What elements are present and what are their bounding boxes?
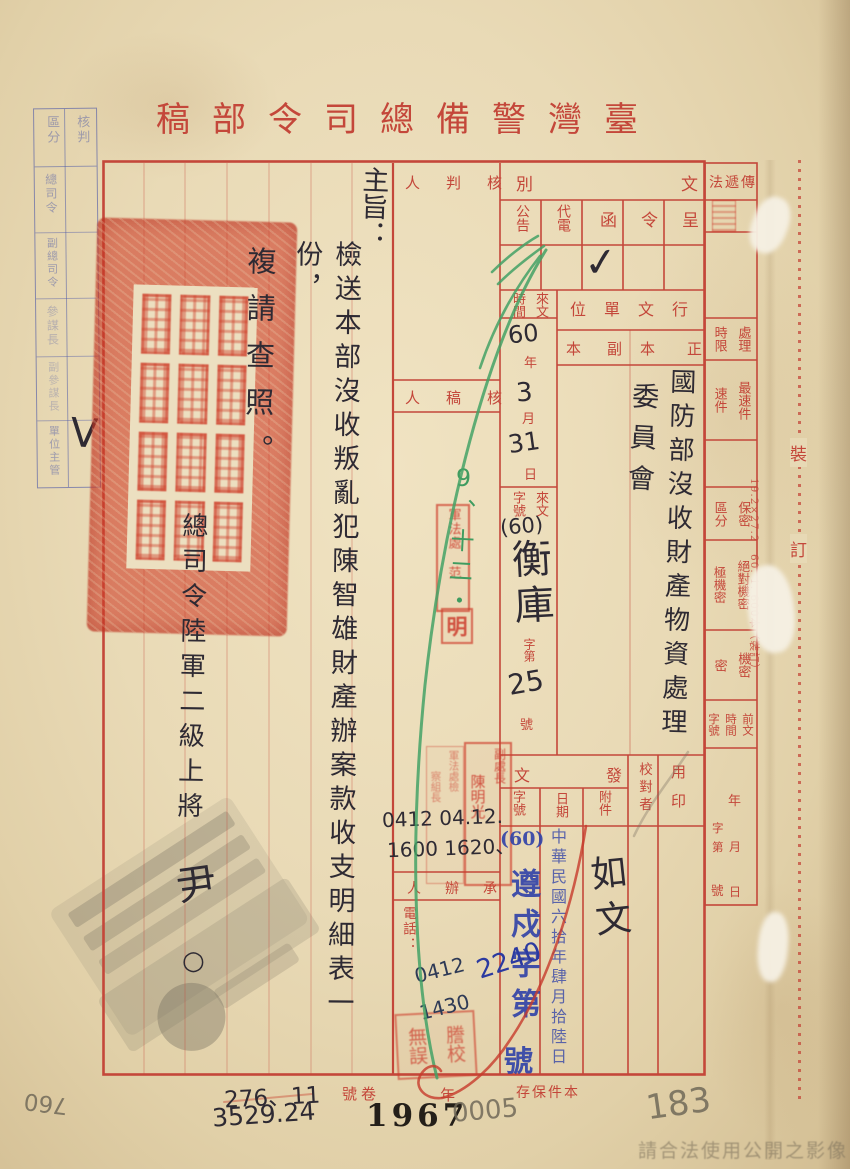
incoming-no-prefix: (60): [499, 512, 544, 540]
doc-class-option-daidian: 代電: [553, 204, 573, 232]
year-unit: 年: [524, 352, 537, 371]
recipient-handwritten: 委員會: [616, 381, 663, 533]
handler-times-handwritten: 0412 04.12.: [382, 804, 504, 832]
deadline-cell: 處理 時限: [705, 318, 757, 360]
prev-hao: 號: [711, 880, 724, 899]
usage-watermark: 請合法使用公開之影像: [638, 1136, 848, 1163]
doc-class-checkmark: ✓: [582, 238, 620, 287]
month-unit: 月: [522, 408, 535, 427]
seal-script-glyph: [137, 431, 168, 491]
seal-script-glyph: [139, 362, 170, 422]
incoming-year-value: 60: [507, 318, 540, 349]
document-page: 稿部令司總備警灣臺 核判 區分 總司令 副總司令 參謀長 副參謀長 單位主管 V: [0, 0, 850, 1169]
signer-mark-handwritten: ○: [182, 946, 205, 976]
incoming-month-value: 3: [515, 377, 534, 408]
proofread-seal-text: 謄校: [440, 1024, 469, 1063]
draft-reviewer-label: 人稿核: [405, 387, 528, 408]
signer-name-handwritten: 尹: [172, 849, 220, 912]
deputy-chief-seal-title: 副處長: [492, 748, 509, 784]
prev-di: 第: [712, 839, 724, 855]
seal-script-glyph: [177, 363, 208, 423]
secrecy-high-secret: 極機密: [710, 566, 729, 604]
pencil-side-number: 760: [23, 1087, 70, 1118]
outgoing-date-stamp: 中華民國六拾年肆月拾陸日: [545, 828, 569, 1078]
outgoing-no-prefix-stamp: (60): [500, 828, 544, 850]
prev-month-unit: 月: [729, 838, 741, 855]
doc-class-option-cheng: 呈: [676, 211, 701, 228]
priority-cell: 最速件 速件: [705, 360, 757, 440]
outgoing-no-hao-stamp: 號: [504, 1038, 533, 1080]
body-text-line2: 複請查照。: [235, 246, 282, 517]
carbon-copy-label: 本副: [566, 338, 648, 359]
priority-fastest: 最速件: [733, 381, 752, 420]
keep-label: 存保件本: [516, 1082, 580, 1102]
attachment-label: 附件: [594, 790, 613, 816]
incoming-no-word: 衡庫: [498, 537, 562, 662]
binding-char: 訂: [790, 534, 807, 563]
signer-title-handwritten: 總司令陸軍二級上將: [169, 512, 212, 873]
date-label: 日期: [551, 792, 570, 818]
deadline-label: 處理: [733, 326, 752, 352]
proofreader-label: 校對者: [634, 762, 654, 815]
body-text-line1: 檢送本部沒收叛亂犯陳智雄財產辦案款收支明細表一份，: [279, 240, 366, 1086]
deadline-label: 時限: [710, 326, 729, 352]
incoming-day-value: 31: [506, 426, 542, 459]
day-unit: 日: [524, 464, 537, 483]
doc-class-option-han: 函: [594, 211, 619, 228]
seal-script-glyph: [179, 295, 210, 355]
seal-here-label: 用印: [668, 764, 689, 822]
incoming-time-label: 來文: [531, 292, 550, 318]
binding-dotted-line: [798, 160, 801, 1105]
section-chief-seal-text: 察組長: [429, 771, 444, 803]
section-chief-seal-text: 軍法處檢: [447, 750, 462, 792]
incoming-time-label: 時間: [508, 292, 527, 318]
prev-year-unit: 年: [728, 790, 741, 809]
proofread-seal-text: 無誤: [403, 1026, 432, 1065]
doc-class-label: 別文: [516, 170, 846, 195]
incoming-no-hao: 號: [520, 714, 533, 733]
prev-day-unit: 日: [729, 883, 741, 900]
binding-char: 裝: [790, 438, 807, 467]
priority-fast: 速件: [710, 387, 729, 413]
incoming-no-value: 25: [505, 663, 546, 702]
recipients-label: 位單文行: [570, 296, 706, 320]
seal-script-glyph: [136, 500, 167, 560]
doc-class-option-ling: 令: [635, 211, 660, 228]
seal-script-glyph: [176, 432, 207, 492]
doc-class-option-gonggao: 公告: [512, 204, 532, 232]
transmission-label: 法遞傳: [709, 172, 757, 192]
handler-times-handwritten: 1600 1620、: [387, 830, 516, 863]
secrecy-confidential: 密: [710, 659, 729, 672]
prev-doc-label: 時間: [723, 713, 739, 736]
prev-doc-label: 字號: [706, 713, 722, 736]
reviewer-label: 人判核: [405, 172, 528, 193]
seal-script-glyph: [141, 294, 172, 354]
secrecy-label: 區分: [710, 501, 729, 527]
pencil-number: 0005: [451, 1093, 520, 1129]
phone-label: 電話：: [398, 906, 418, 953]
small-corner-seal: [712, 200, 736, 232]
prev-zi: 字: [712, 820, 724, 836]
